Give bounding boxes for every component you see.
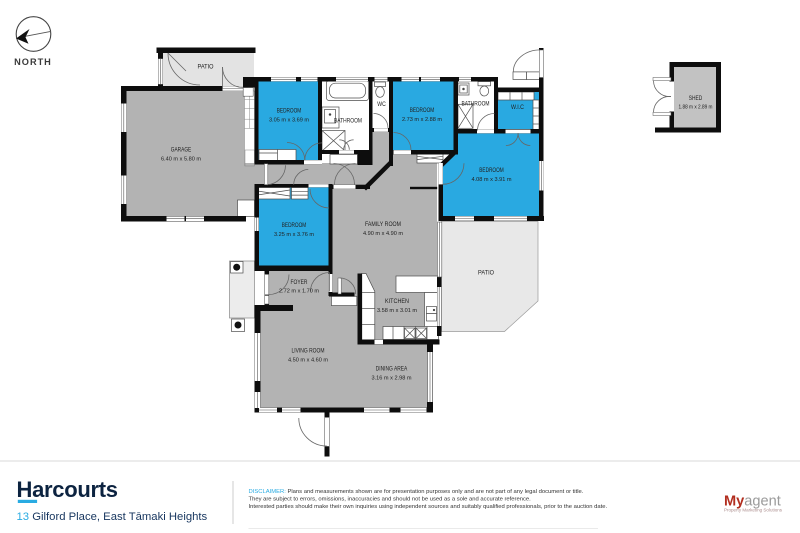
svg-text:NORTH: NORTH — [14, 57, 52, 67]
svg-text:BEDROOM: BEDROOM — [410, 107, 435, 114]
svg-text:KITCHEN: KITCHEN — [385, 298, 409, 305]
svg-text:1.88 m x 2.89 m: 1.88 m x 2.89 m — [679, 105, 713, 111]
svg-text:3.58 m x 3.01 m: 3.58 m x 3.01 m — [377, 308, 417, 314]
svg-text:13 Gilford Place, East Tāmaki: 13 Gilford Place, East Tāmaki Heights — [17, 511, 208, 523]
svg-text:3.25 m x 3.76 m: 3.25 m x 3.76 m — [274, 232, 314, 238]
svg-text:4.50 m x 4.60 m: 4.50 m x 4.60 m — [288, 358, 328, 364]
svg-text:DINING AREA: DINING AREA — [376, 366, 408, 373]
svg-text:4.08 m x 3.91 m: 4.08 m x 3.91 m — [471, 177, 511, 183]
svg-text:BEDROOM: BEDROOM — [479, 167, 504, 174]
svg-text:Harcourts: Harcourts — [17, 477, 118, 502]
svg-text:SHED: SHED — [689, 95, 703, 102]
svg-text:BATHROOM: BATHROOM — [334, 118, 362, 125]
svg-text:BEDROOM: BEDROOM — [282, 222, 307, 229]
svg-text:3.05 m x 3.69 m: 3.05 m x 3.69 m — [269, 118, 309, 124]
svg-text:They are subject to errors, om: They are subject to errors, omissions, i… — [249, 497, 532, 503]
svg-text:6.40 m x 5.80 m: 6.40 m x 5.80 m — [161, 157, 201, 163]
svg-text:LIVING ROOM: LIVING ROOM — [292, 348, 325, 355]
svg-text:PATIO: PATIO — [198, 64, 214, 71]
svg-text:GARAGE: GARAGE — [171, 147, 192, 154]
svg-text:WC: WC — [377, 101, 386, 108]
svg-text:2.73 m x 2.88 m: 2.73 m x 2.88 m — [402, 117, 442, 123]
svg-text:BATHROOM: BATHROOM — [462, 101, 490, 108]
svg-text:DISCLAIMER: Plans and measurem: DISCLAIMER: Plans and measurements shown… — [249, 489, 584, 495]
svg-text:FAMILY ROOM: FAMILY ROOM — [365, 221, 401, 228]
svg-text:PATIO: PATIO — [478, 270, 494, 277]
svg-text:FOYER: FOYER — [291, 279, 308, 286]
svg-text:4.90 m x 4.90 m: 4.90 m x 4.90 m — [363, 231, 403, 237]
svg-text:2.72 m x 1.70 m: 2.72 m x 1.70 m — [279, 289, 319, 295]
svg-text:W.I.C: W.I.C — [511, 104, 524, 111]
svg-text:3.16 m x 2.98 m: 3.16 m x 2.98 m — [371, 376, 411, 382]
svg-text:BEDROOM: BEDROOM — [277, 108, 302, 115]
svg-text:Property Marketing Solutions: Property Marketing Solutions — [724, 508, 783, 513]
svg-text:Interested parties should make: Interested parties should make their own… — [249, 504, 608, 510]
